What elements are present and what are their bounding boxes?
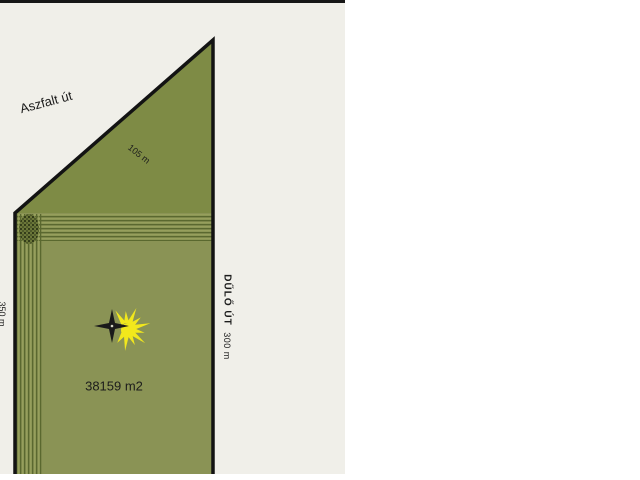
- horizontal-hatch-band: [16, 214, 212, 241]
- parcel-drawing: [0, 0, 345, 474]
- edge-length-right: 300 m: [222, 332, 232, 360]
- parcel-area-label: 38159 m2: [85, 379, 143, 394]
- sun-rays-icon: [113, 307, 151, 351]
- four-point-star-icon: [94, 309, 129, 343]
- road-label-dirt-road: DŰLŐ ÚT: [222, 274, 233, 325]
- map-drawing-area[interactable]: Aszfalt út 105 m 350 m DŰLŐ ÚT 300 m 381…: [0, 0, 345, 474]
- edge-length-left: 350 m: [0, 301, 7, 326]
- application-canvas: Aszfalt út 105 m 350 m DŰLŐ ÚT 300 m 381…: [0, 0, 640, 480]
- stipple-marker-dots: [19, 214, 39, 244]
- sun-star-symbol: [92, 302, 152, 356]
- vertical-hatch-band: [16, 214, 42, 474]
